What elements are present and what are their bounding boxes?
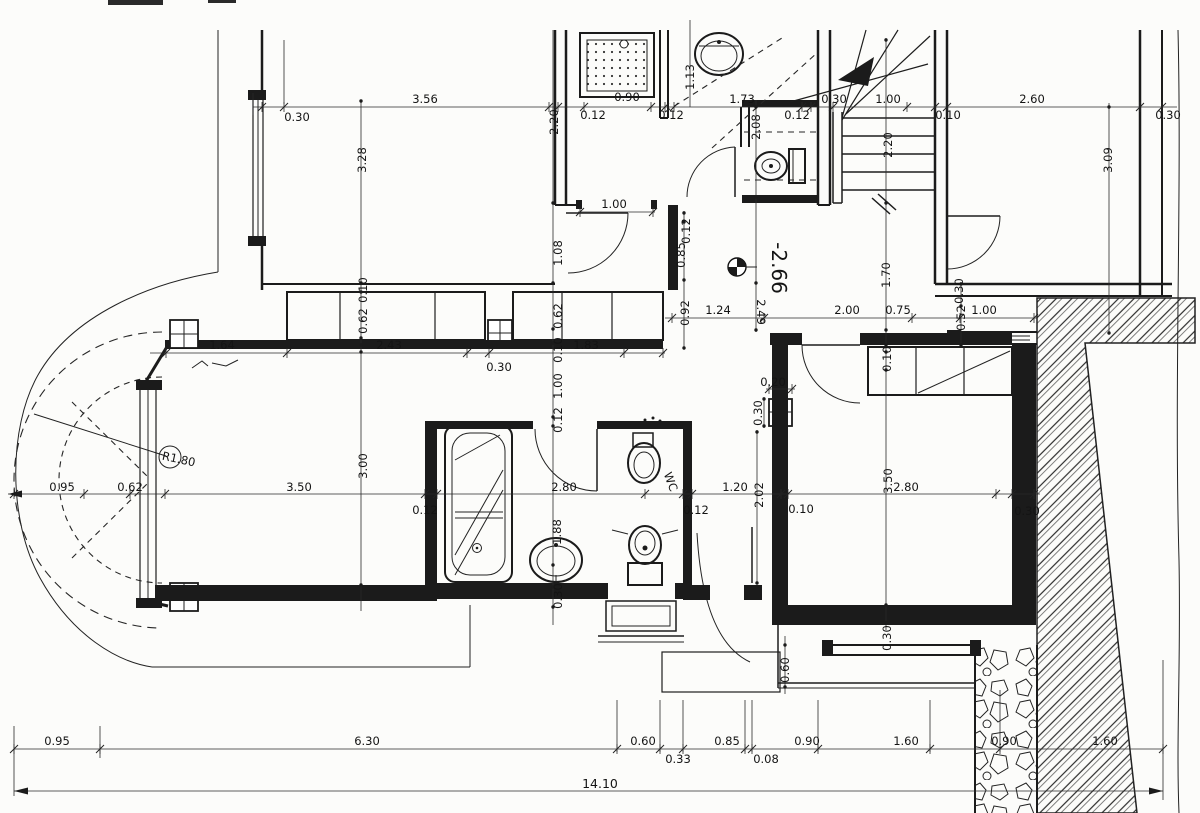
dimension-label: 3.28: [355, 147, 369, 173]
dimension-label: 0.62: [117, 480, 143, 494]
dimension-label: 0.85: [714, 734, 740, 748]
dimension-label: 2.20: [881, 132, 895, 158]
dimension-label: 0.92: [678, 300, 692, 326]
dimension-label: 0.30: [486, 360, 512, 374]
dimension-label: 2.20: [547, 109, 561, 135]
dimension-label: 1.00: [551, 373, 565, 399]
dimension-label: 1.64: [209, 338, 235, 352]
dimension-label: -2.66: [767, 242, 791, 294]
dimension-label: 1.70: [879, 262, 893, 288]
wc-pedestal: [598, 601, 684, 642]
dimension-label: 0.10: [880, 346, 894, 372]
wall-column: [170, 320, 198, 348]
dimension-label: 0.12: [658, 108, 684, 122]
dimension-label: 0.62: [551, 303, 565, 329]
stair-direction-arrow-icon: [838, 57, 874, 86]
dimension-label: 2.02: [752, 482, 766, 508]
dimension-label: 0.52: [954, 305, 968, 331]
dimension-label: 0.30: [952, 278, 966, 304]
dimension-label: 1.20: [722, 480, 748, 494]
dimension-label: 0.33: [665, 752, 691, 766]
dimension-label: WC: [661, 470, 681, 493]
door-arc-top-right-room: [947, 216, 1000, 269]
dimension-label: 3.50: [881, 468, 895, 494]
rubble-wall: [975, 645, 1037, 813]
dimension-label: 0.30: [551, 583, 565, 609]
dimension-label: 1.00: [971, 303, 997, 317]
dimension-label: 0.10: [935, 108, 961, 122]
dimension-label: 0.12: [580, 108, 606, 122]
dimension-label: 3.50: [286, 480, 312, 494]
door-arc-bedroom: [802, 345, 860, 403]
walls: [136, 30, 1172, 692]
dimension-label: 2.00: [834, 303, 860, 317]
dimension-label: 0.10: [788, 502, 814, 516]
toilet-icon-top: [755, 149, 805, 183]
shower-icon: [580, 33, 654, 97]
dimension-label: 0.12: [784, 108, 810, 122]
dimension-label: 1.60: [1092, 734, 1118, 748]
hand-mark: [192, 360, 238, 368]
door-arc-upper-left-room: [566, 213, 628, 273]
dimension-label: 0.60: [778, 657, 792, 683]
dimension-label: 0.30: [880, 625, 894, 651]
dimension-label: 2.60: [1019, 92, 1045, 106]
dimension-label: 0.20: [760, 375, 786, 389]
dimension-label: 0.12: [551, 407, 565, 433]
dimension-label: 0.08: [753, 752, 779, 766]
toilet-icon-bath: [612, 526, 678, 585]
sink-icon-top: [695, 33, 743, 75]
dimension-label: 2.08: [749, 114, 763, 140]
dimension-label: 0.10: [551, 337, 565, 363]
level-marker-icon: [728, 258, 757, 276]
dimension-label: 0.75: [885, 303, 911, 317]
door-arc-wc-room: [687, 147, 735, 197]
dimension-label: 3.56: [412, 92, 438, 106]
window-bedroom-bottom: [833, 645, 970, 655]
floor-plan-sheet: Scanned architectural floor plan, baseme…: [0, 0, 1200, 813]
dimension-label: 0.30: [1014, 504, 1040, 518]
dimension-label: 0.30: [1155, 108, 1181, 122]
floor-plan-drawing: Scanned architectural floor plan, baseme…: [0, 0, 1200, 813]
dimension-label: 0.95: [49, 480, 75, 494]
entry-step: [662, 652, 780, 692]
dimension-label: 3.09: [1101, 147, 1115, 173]
dimension-label: 1.00: [875, 92, 901, 106]
dimension-label: 6.30: [354, 734, 380, 748]
dimension-label: 0.30: [751, 400, 765, 426]
dimension-label: 0.12: [679, 218, 693, 244]
bathtub-icon: [445, 426, 512, 582]
closet-row-right: [513, 292, 663, 340]
dimension-label: 1.00: [601, 197, 627, 211]
dimension-label: 2.80: [551, 480, 577, 494]
dimension-label: 1.08: [551, 240, 565, 266]
dimension-label: 0.90: [794, 734, 820, 748]
dimension-label: 0.60: [630, 734, 656, 748]
dimension-label: 1.60: [893, 734, 919, 748]
scan-artifact: [108, 0, 236, 5]
dimension-label: 1.24: [705, 303, 731, 317]
dimension-label: 0.90: [614, 90, 640, 104]
closet-row-left: [287, 292, 485, 340]
dimension-label: 1.88: [550, 519, 564, 545]
dimension-label: 1.13: [683, 64, 697, 90]
dimension-label: 0.12: [683, 503, 709, 517]
dimension-label: 1.73: [729, 92, 755, 106]
dimension-label: 0.95: [44, 734, 70, 748]
dimension-label: 1.83: [573, 338, 599, 352]
dimension-label: 0.12: [412, 503, 438, 517]
radius-leader-line: [34, 414, 166, 456]
dimension-label: 0.62: [356, 308, 370, 334]
dimension-label: 0.85: [674, 242, 688, 268]
dimension-label: 3.00: [356, 453, 370, 479]
dimension-label: 2.49: [754, 299, 768, 325]
dimension-label: 0.10: [356, 277, 370, 303]
window-upper-left: [253, 100, 263, 236]
dimension-label: 0.90: [991, 734, 1017, 748]
dimension-label: 14.10: [582, 776, 618, 791]
dimension-label: 0.30: [821, 92, 847, 106]
dimension-label: R1.80: [161, 449, 197, 470]
dimension-label: 2.43: [376, 338, 402, 352]
dimension-label: 2.80: [893, 480, 919, 494]
outer-edge-line: [1177, 30, 1179, 813]
dimension-label: 0.30: [284, 110, 310, 124]
